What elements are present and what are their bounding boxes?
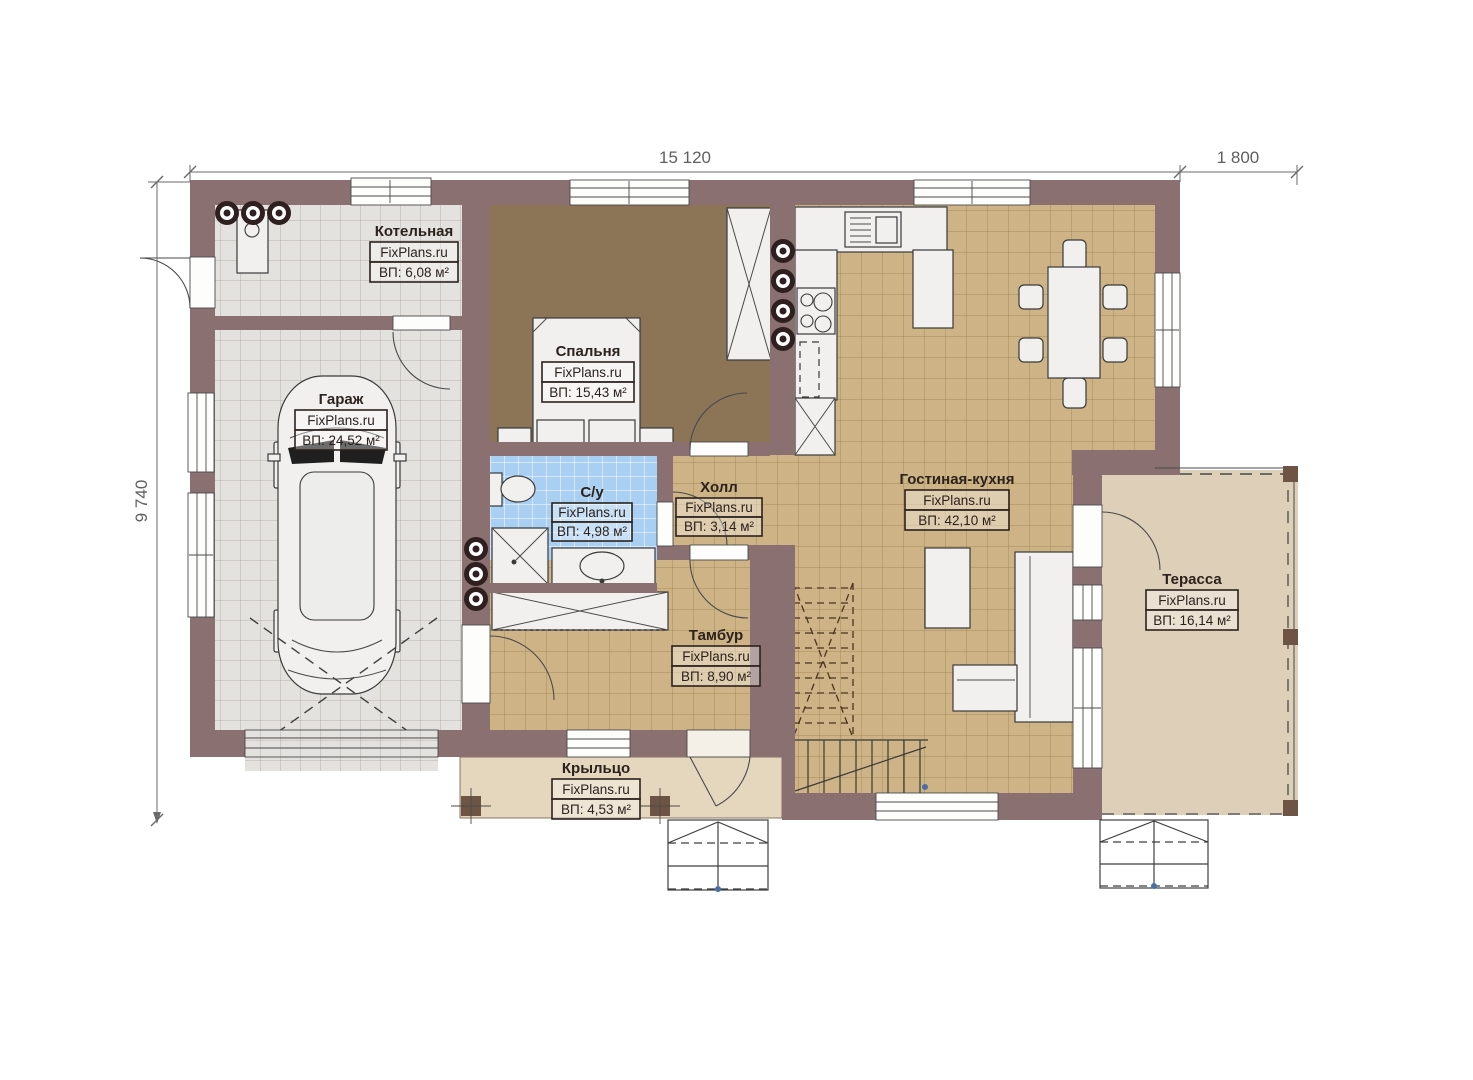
room-brand: FixPlans.ru [380, 245, 448, 260]
room-area: ВП: 4,98 м² [557, 524, 628, 539]
room-name: Спальня [556, 343, 621, 360]
room-brand: FixPlans.ru [307, 413, 375, 428]
room-area: ВП: 4,53 м² [561, 802, 632, 817]
room-area: ВП: 15,43 м² [549, 385, 627, 400]
window-left-2 [188, 493, 214, 617]
dim-left: 9 740 [132, 480, 151, 523]
terrace-post-3 [1283, 800, 1298, 816]
wall-bath-tambur [466, 583, 657, 593]
room-area: ВП: 6,08 м² [379, 265, 450, 280]
boiler-flues [215, 201, 291, 225]
shower [492, 528, 548, 584]
room-area: ВП: 24,52 м² [302, 433, 380, 448]
terrace-post-2 [1283, 629, 1298, 645]
room-label-spalnya: Спальня FixPlans.ru ВП: 15,43 м² [542, 343, 634, 402]
room-name: Холл [700, 479, 738, 496]
room-brand: FixPlans.ru [1158, 593, 1226, 608]
dim-top-right: 1 800 [1217, 148, 1260, 167]
room-name: С/у [580, 484, 604, 501]
room-name: Котельная [375, 223, 454, 240]
window-left-1 [188, 393, 214, 472]
terrace-floor [1102, 470, 1298, 815]
room-name: Гараж [319, 391, 364, 408]
room-brand: FixPlans.ru [923, 493, 991, 508]
room-area: ВП: 8,90 м² [681, 669, 752, 684]
room-label-gostinaya: Гостиная-кухня FixPlans.ru ВП: 42,10 м² [900, 471, 1015, 530]
dim-top: 15 120 [659, 148, 711, 167]
room-name: Крыльцо [562, 760, 630, 777]
vanity-sink [552, 548, 655, 587]
window-top-1 [351, 178, 431, 205]
garage-door [245, 730, 438, 757]
wall-kitchen-terrace [1072, 450, 1180, 475]
window-right [1155, 273, 1180, 387]
floor-plan-drawing: Котельная FixPlans.ru ВП: 6,08 м² Гараж … [0, 0, 1473, 1080]
window-terrace-long [1073, 648, 1102, 768]
window-top-2 [570, 180, 689, 205]
room-name: Гостиная-кухня [900, 471, 1015, 488]
room-label-kotelnaya: Котельная FixPlans.ru ВП: 6,08 м² [370, 223, 458, 282]
door-boiler-exterior [140, 257, 215, 308]
room-brand: FixPlans.ru [558, 505, 626, 520]
room-area: ВП: 3,14 м² [684, 519, 755, 534]
room-brand: FixPlans.ru [562, 782, 630, 797]
terrace-steps [1100, 820, 1208, 889]
room-area: ВП: 42,10 м² [918, 513, 996, 528]
room-brand: FixPlans.ru [682, 649, 750, 664]
kitchen-peninsula [913, 250, 953, 328]
window-living-bottom [876, 793, 998, 820]
room-name: Терасса [1162, 571, 1222, 588]
garage-flues [464, 537, 488, 611]
floor-plan-page: Котельная FixPlans.ru ВП: 6,08 м² Гараж … [0, 0, 1473, 1080]
tambur-closet [492, 592, 668, 630]
room-brand: FixPlans.ru [554, 365, 622, 380]
room-name: Тамбур [689, 627, 743, 644]
dining-table [1048, 267, 1100, 378]
window-tambur [567, 730, 630, 757]
porch-steps [668, 820, 768, 892]
coffee-table [925, 548, 970, 628]
window-terrace-small [1073, 585, 1102, 620]
room-brand: FixPlans.ru [685, 500, 753, 515]
bedroom-closet [727, 208, 771, 360]
fridge [795, 398, 835, 455]
wall-tambur-stairs [750, 560, 795, 730]
room-area: ВП: 16,14 м² [1153, 613, 1231, 628]
window-top-3 [914, 180, 1030, 205]
wall-stair-side [782, 730, 795, 793]
room-label-krylco: Крыльцо FixPlans.ru ВП: 4,53 м² [552, 760, 640, 819]
terrace-post-1 [1283, 466, 1298, 482]
